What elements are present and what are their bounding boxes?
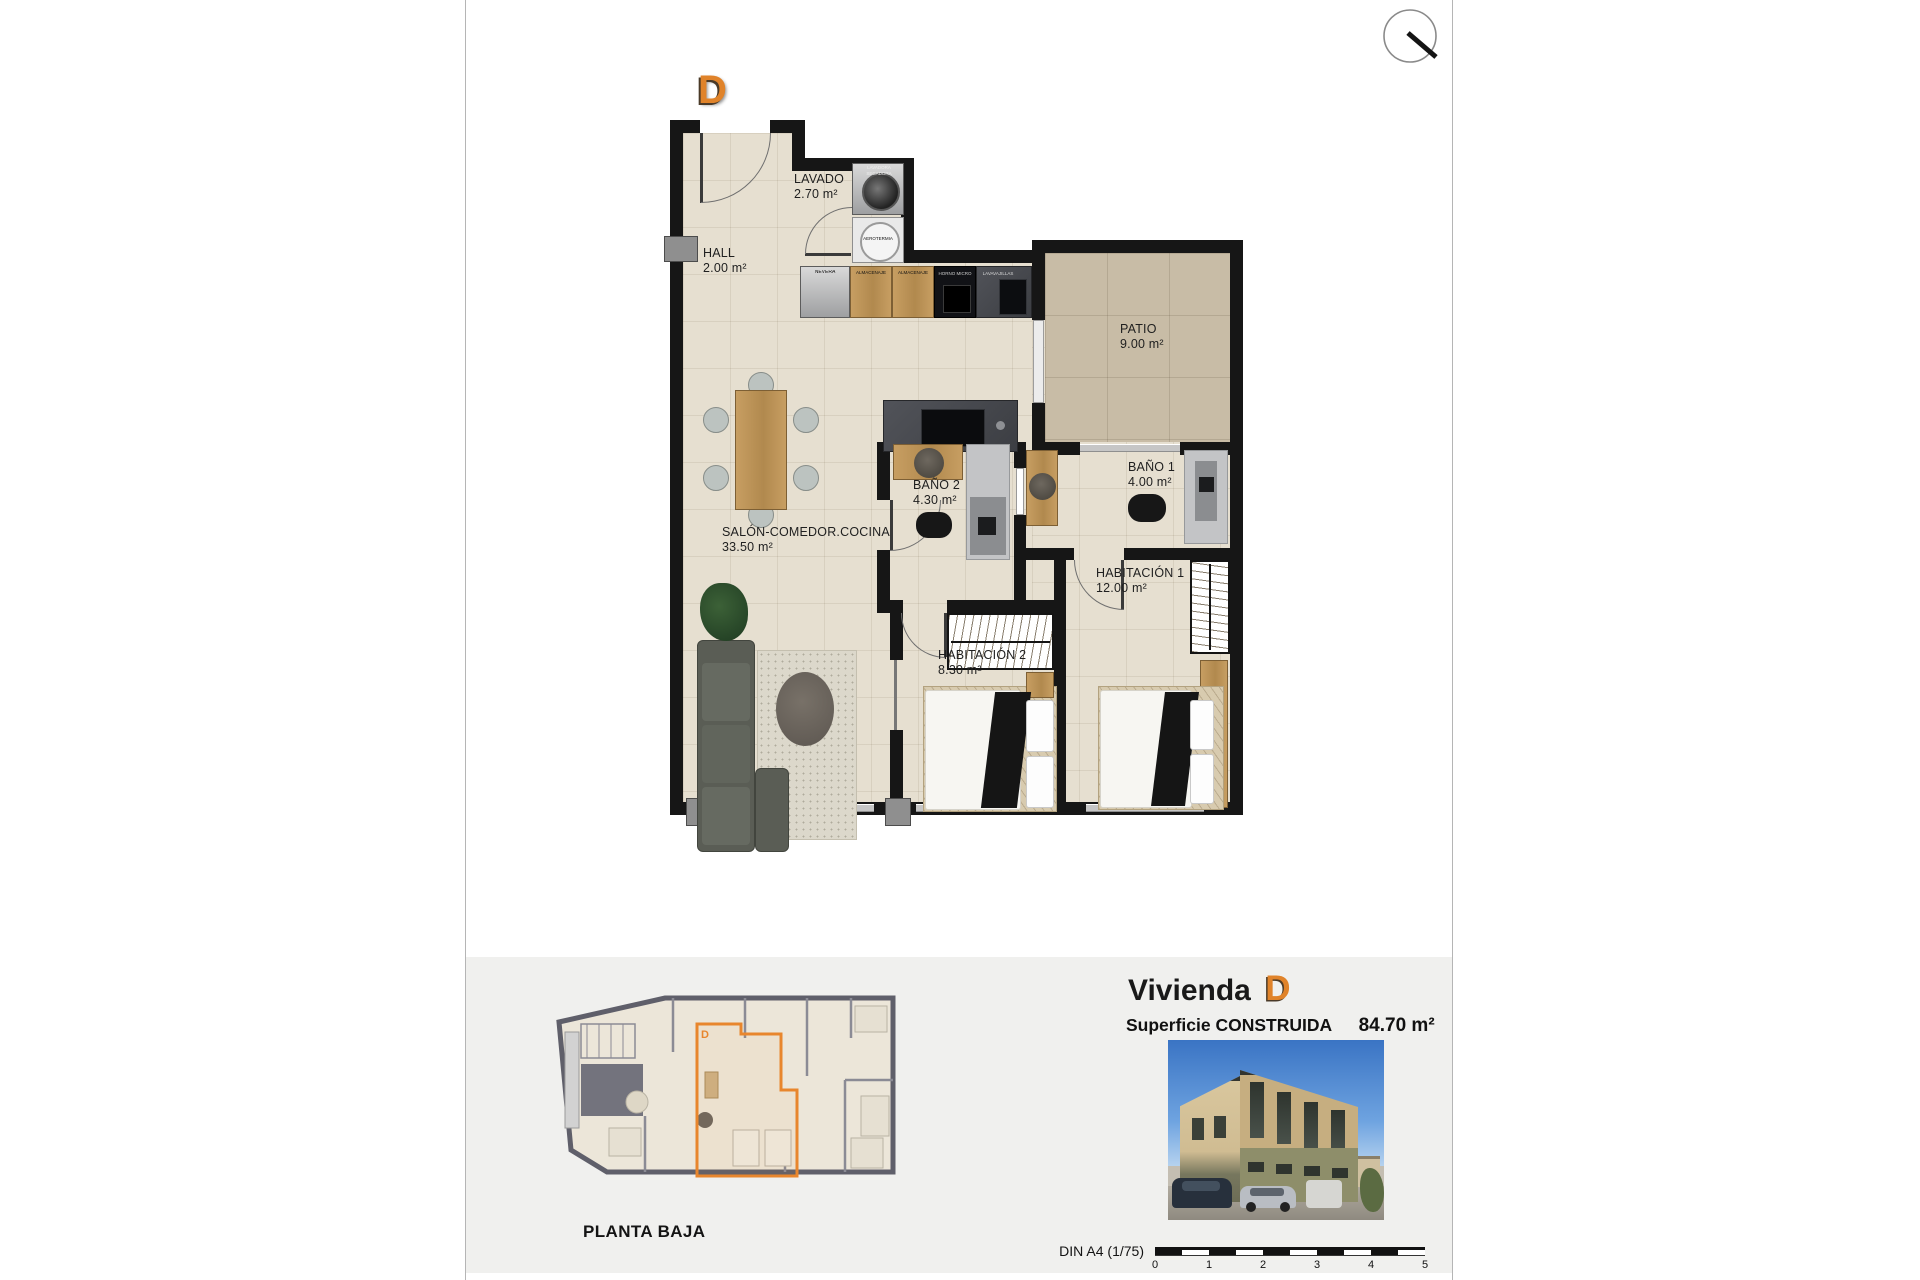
scale-tick: 0 <box>1148 1259 1162 1271</box>
cooktop <box>921 409 985 447</box>
oven-micro: HORNO MICRO <box>934 266 976 318</box>
photo-car-dark <box>1172 1178 1232 1208</box>
dishwasher-label: LAVAVAJILLAS <box>978 271 1018 277</box>
round-rug <box>776 672 834 746</box>
chair <box>703 465 729 491</box>
wall-segment <box>792 120 805 171</box>
building-photo <box>1168 1040 1384 1220</box>
scale-tick: 1 <box>1202 1259 1216 1271</box>
room-label-bath1: BAÑO 1 4.00 m² <box>1128 460 1175 490</box>
wall-segment <box>1032 403 1045 455</box>
scale-bar <box>1155 1250 1425 1256</box>
room-label-bath2: BAÑO 2 4.30 m² <box>913 478 960 508</box>
surface-value: 84.70 m² <box>1359 1015 1435 1036</box>
wall-segment <box>1124 548 1243 560</box>
bedroom1-wardrobe <box>1190 560 1230 654</box>
pillar <box>664 236 698 262</box>
footer-panel: D PLANTA BAJA Vivienda D Superficie CONS… <box>466 957 1452 1273</box>
chair <box>703 407 729 433</box>
window-patio <box>1080 444 1180 452</box>
wall-segment <box>1032 240 1243 253</box>
photo-car-silver <box>1240 1186 1296 1208</box>
dining-table <box>735 390 787 510</box>
fridge-label: NEVERA <box>802 270 848 276</box>
bedroom2-pillow <box>1026 700 1054 752</box>
surface-label: Superficie CONSTRUIDA <box>1126 1015 1332 1035</box>
unit-letter: D <box>698 68 727 113</box>
chair <box>793 465 819 491</box>
scale-tick: 5 <box>1418 1259 1432 1271</box>
bath2-shower <box>966 444 1010 560</box>
bath2-vanity <box>893 444 963 480</box>
plant <box>700 583 748 641</box>
drawing-sheet: D LAVADORA SECA <box>0 0 1920 1280</box>
aerotermia-unit: AEROTERMIA <box>852 217 904 263</box>
wall-segment <box>947 600 1066 613</box>
sofa-chaise <box>755 768 789 852</box>
patio-sliding-door <box>1033 320 1044 403</box>
scale-tick: 3 <box>1310 1259 1324 1271</box>
wall-segment <box>877 600 903 613</box>
bath1-toilet <box>1128 494 1166 522</box>
mini-overview-plan: D <box>545 980 965 1210</box>
room-label-hall: HALL 2.00 m² <box>703 246 747 276</box>
bath1-shower <box>1184 450 1228 544</box>
island-faucet <box>996 421 1005 430</box>
bath2-basin <box>914 448 944 478</box>
bedroom1-pillow <box>1190 754 1214 804</box>
photo-bush <box>1360 1168 1384 1212</box>
bedroom1-pillow <box>1190 700 1214 750</box>
cabinet: ALMACENAJE <box>892 266 934 318</box>
bath1-pocket-door <box>1016 468 1024 515</box>
bath2-toilet <box>916 512 952 538</box>
wall-segment <box>670 120 683 815</box>
oven-micro-label: HORNO MICRO <box>936 271 974 277</box>
aerotermia-label: AEROTERMIA <box>855 236 901 242</box>
vivienda-letter: D <box>1265 969 1290 1008</box>
vivienda-title: Vivienda D <box>1128 969 1291 1009</box>
scale-tick: 4 <box>1364 1259 1378 1271</box>
bath1-shower-fixture <box>1199 477 1214 492</box>
wall-segment <box>1032 253 1045 320</box>
bath1-basin <box>1029 473 1056 500</box>
photo-van-white <box>1306 1180 1342 1208</box>
dishwasher-counter: LAVAVAJILLAS <box>976 266 1032 318</box>
sliding-door <box>894 660 897 730</box>
page-border-right <box>1452 0 1453 1280</box>
void-above-lavado <box>805 118 914 158</box>
room-label-salon: SALÓN-COMEDOR.COCINA 33.50 m² <box>722 525 890 555</box>
fridge: NEVERA <box>800 266 850 318</box>
washer-dryer-label: LAVADORA SECADORA <box>855 165 903 176</box>
scale-label: DIN A4 (1/75) <box>1020 1243 1144 1259</box>
sofa <box>697 640 755 852</box>
bedroom2-pillow <box>1026 756 1054 808</box>
mini-plan-title: PLANTA BAJA <box>583 1222 705 1242</box>
bath1-vanity <box>1026 450 1058 526</box>
cabinet: ALMACENAJE <box>850 266 892 318</box>
wall-segment <box>1014 515 1026 613</box>
scale-tick: 2 <box>1256 1259 1270 1271</box>
room-label-bedroom1: HABITACIÓN 1 12.00 m² <box>1096 566 1184 596</box>
vivienda-label: Vivienda <box>1128 974 1251 1007</box>
pillar <box>885 798 911 826</box>
mini-plan-unit-letter: D <box>701 1029 709 1041</box>
room-label-bedroom2: HABITACIÓN 2 8.30 m² <box>938 648 1026 678</box>
wall-segment <box>901 250 1032 263</box>
chair <box>793 407 819 433</box>
wall-segment <box>1230 240 1243 815</box>
kitchen-sink <box>999 279 1027 315</box>
room-label-lavado: LAVADO 2.70 m² <box>794 172 844 202</box>
room-label-patio: PATIO 9.00 m² <box>1120 322 1164 352</box>
washer-dryer: LAVADORA SECADORA <box>852 163 904 215</box>
compass-needle-icon <box>1380 7 1442 69</box>
cabinet-label: ALMACENAJE <box>894 270 932 276</box>
void-above-kitchen <box>914 118 1032 250</box>
surface-line: Superficie CONSTRUIDA 84.70 m² <box>1126 1015 1435 1037</box>
bath2-shower-fixture <box>978 517 996 535</box>
cabinet-label: ALMACENAJE <box>852 270 890 276</box>
